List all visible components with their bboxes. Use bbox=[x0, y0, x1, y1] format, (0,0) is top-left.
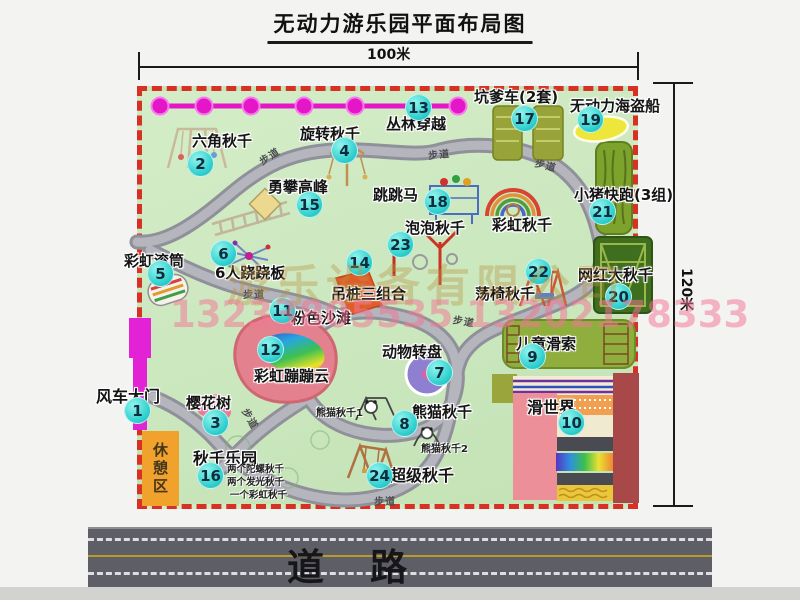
marker-10: 10 bbox=[558, 409, 585, 436]
marker-12: 12 bbox=[257, 336, 284, 363]
label-bubble-swing: 泡泡秋千 bbox=[405, 217, 465, 238]
label-rainbow-swing: 彩虹秋千 bbox=[492, 214, 552, 235]
park-map-screenshot: 无动力游乐园平面布局图 100米 120米 bbox=[0, 0, 800, 600]
marker-13: 13 bbox=[405, 94, 432, 121]
marker-17: 17 bbox=[511, 105, 538, 132]
rest-area: 休憩区 bbox=[142, 431, 179, 506]
marker-18: 18 bbox=[424, 188, 451, 215]
label-panda-swing-1: 熊猫秋千1 bbox=[316, 404, 363, 419]
swing-park-note-1: 两个陀螺秋千 bbox=[227, 463, 284, 476]
label-super-swing: 超级秋千 bbox=[390, 462, 454, 486]
label-jumping-horse: 跳跳马 bbox=[373, 184, 418, 205]
marker-16: 16 bbox=[197, 462, 224, 489]
marker-24: 24 bbox=[366, 462, 393, 489]
label-bounce-cloud: 彩虹蹦蹦云 bbox=[254, 365, 329, 386]
label-panda-swing-2: 熊猫秋千2 bbox=[421, 440, 468, 455]
marker-8: 8 bbox=[391, 410, 418, 437]
label-panda-swing: 熊猫秋千 bbox=[412, 401, 472, 422]
marker-4: 4 bbox=[331, 137, 358, 164]
rainbow-swing-icon bbox=[487, 190, 539, 216]
slide-world-icon bbox=[492, 373, 639, 503]
marker-2: 2 bbox=[187, 150, 214, 177]
label-piggy-run: 小猪快跑(3组) bbox=[574, 184, 673, 205]
label-climbing-peak: 勇攀高峰 bbox=[268, 176, 328, 197]
label-animal-turntable: 动物转盘 bbox=[382, 341, 442, 362]
label-hex-swing: 六角秋千 bbox=[192, 130, 252, 151]
marker-3: 3 bbox=[202, 409, 229, 436]
marker-1: 1 bbox=[124, 397, 151, 424]
label-pit-car: 坑爹车(2套) bbox=[474, 86, 558, 107]
marker-15: 15 bbox=[296, 191, 323, 218]
path-label: 步道 bbox=[427, 145, 450, 162]
path-label: 步道 bbox=[374, 493, 396, 508]
marker-19: 19 bbox=[577, 106, 604, 133]
swing-park-note-2: 两个发光秋千 bbox=[227, 476, 284, 489]
swing-park-note-3: 一个彩虹秋千 bbox=[230, 489, 287, 502]
rest-area-label: 休憩区 bbox=[150, 442, 171, 496]
watermark-phones: 13233805535 13202178333 bbox=[170, 293, 749, 336]
marker-9: 9 bbox=[519, 343, 546, 370]
marker-21: 21 bbox=[589, 198, 616, 225]
marker-7: 7 bbox=[426, 359, 453, 386]
marker-5: 5 bbox=[147, 260, 174, 287]
